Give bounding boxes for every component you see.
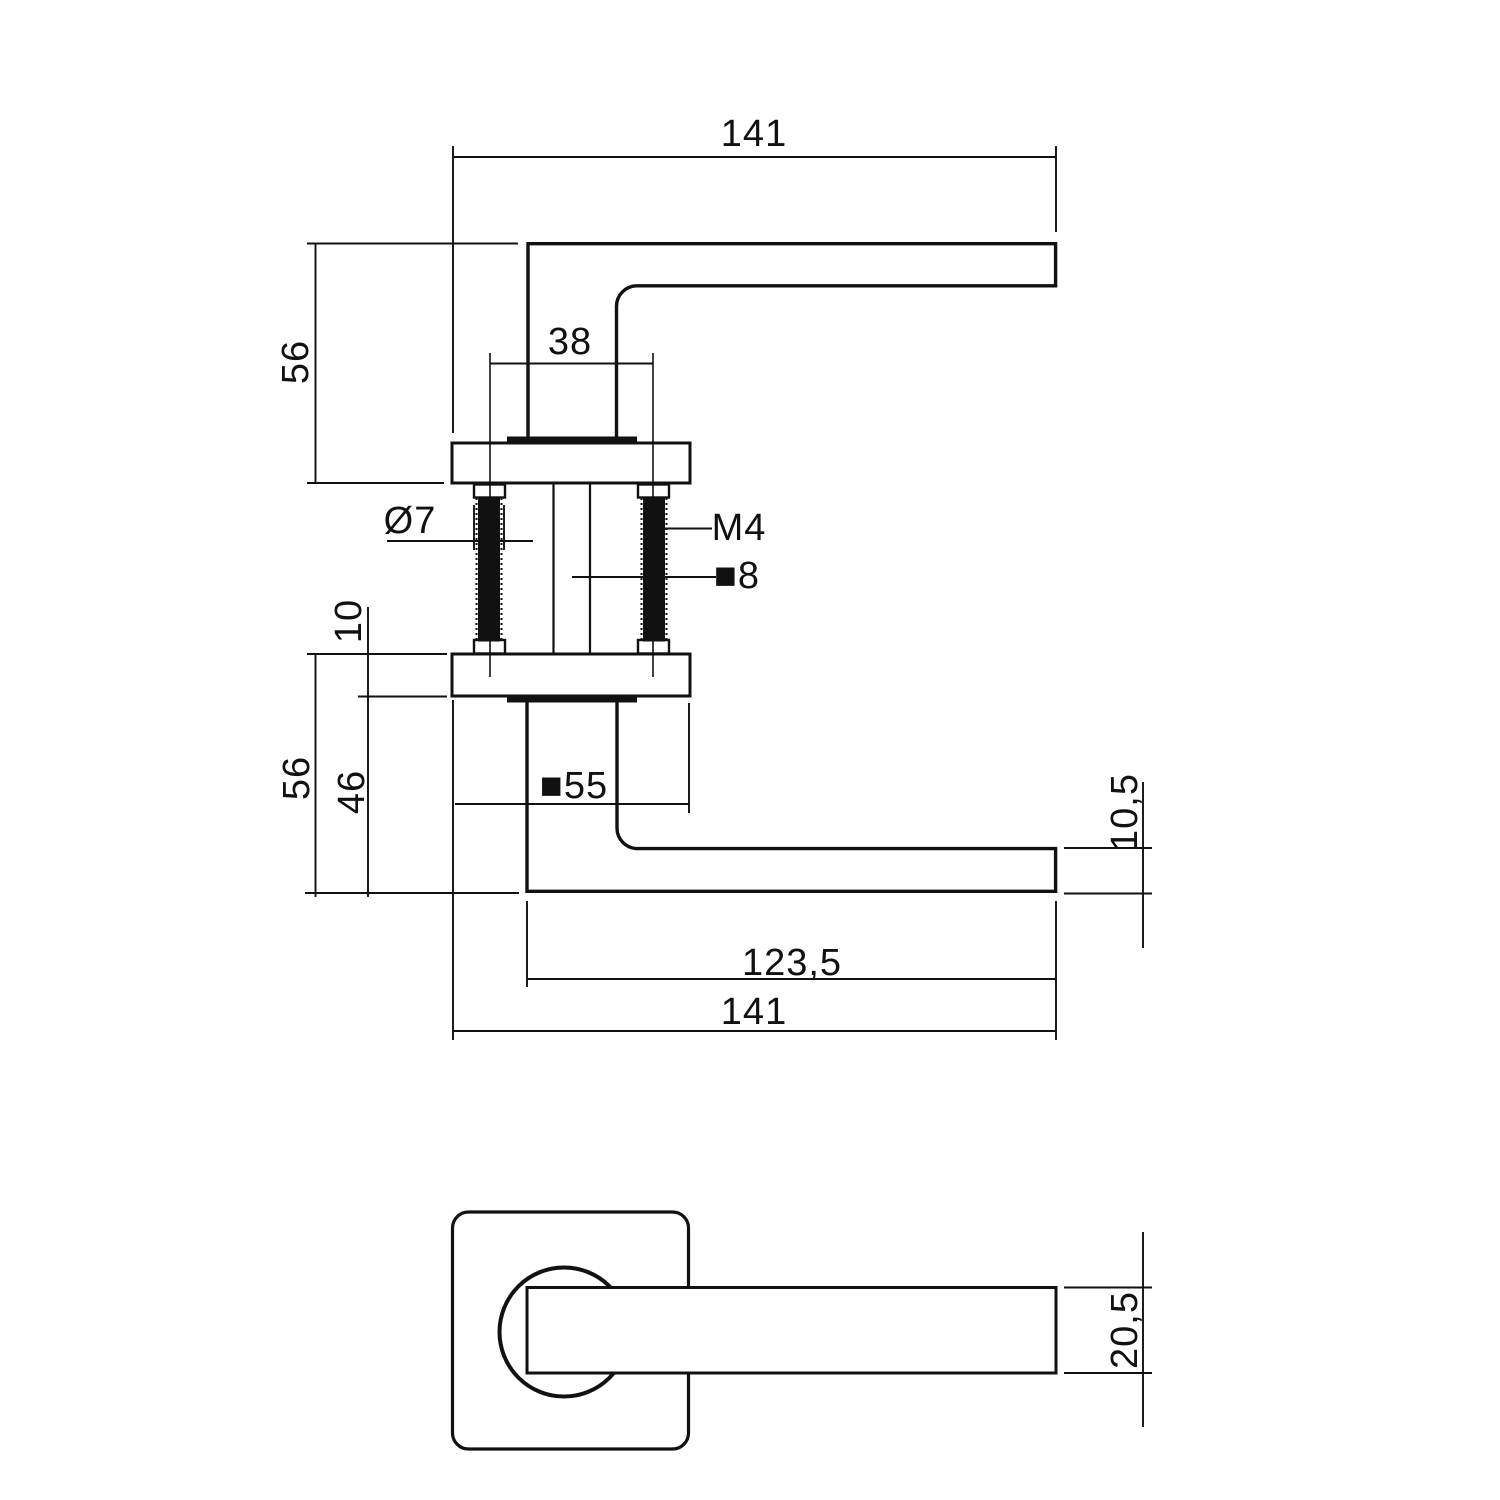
dim-text-38: 38 (548, 323, 592, 361)
upper-gasket (507, 437, 637, 444)
dim-text-46: 46 (333, 770, 371, 814)
threaded-rod-right (643, 497, 665, 642)
dim-text-205: 20,5 (1106, 1291, 1144, 1369)
drawing-linework (0, 0, 1500, 1500)
dim-text-105: 10,5 (1106, 773, 1144, 851)
front-lever-grip (527, 1288, 1056, 1374)
dim-text-dia7: Ø7 (384, 502, 437, 540)
dim-text-m4: M4 (712, 509, 767, 547)
dimension-lines (305, 146, 1152, 1427)
dim-text-10: 10 (330, 599, 368, 643)
top-lever-outline (528, 244, 1056, 437)
technical-drawing-canvas: 141 56 38 Ø7 M4 ■8 10 56 46 ■55 10,5 123… (0, 0, 1500, 1500)
upper-rose (452, 443, 690, 483)
dim-text-141-top: 141 (721, 115, 787, 153)
dim-text-56-bottom: 56 (278, 756, 316, 800)
dim-text-1235: 123,5 (742, 944, 842, 982)
dim-text-56-top: 56 (277, 340, 315, 384)
lower-rose (452, 654, 690, 696)
dim-text-sq55: ■55 (540, 767, 608, 805)
dim-text-141-bottom: 141 (721, 993, 787, 1031)
threaded-rod-left (478, 497, 500, 642)
dim-text-sq8: ■8 (714, 557, 760, 595)
